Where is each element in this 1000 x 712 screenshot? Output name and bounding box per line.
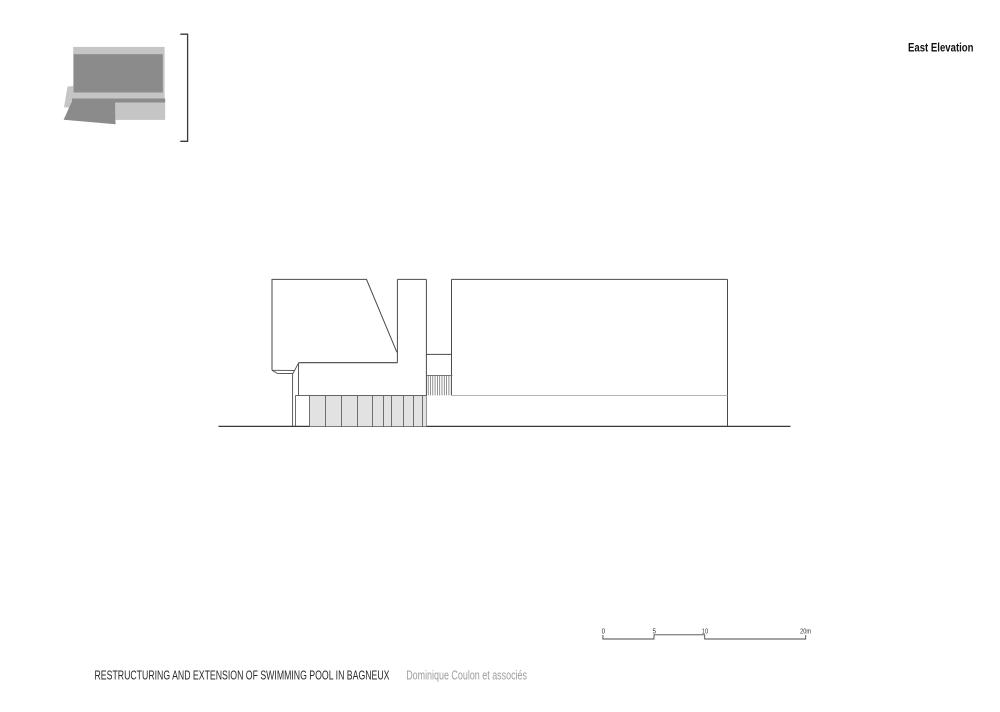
svg-text:20m: 20m — [800, 627, 811, 636]
svg-text:10: 10 — [702, 627, 709, 636]
svg-text:Dominique Coulon et associés: Dominique Coulon et associés — [406, 669, 527, 683]
svg-text:RESTRUCTURING AND EXTENSION OF: RESTRUCTURING AND EXTENSION OF SWIMMING … — [95, 669, 390, 683]
svg-text:East Elevation: East Elevation — [908, 41, 974, 55]
svg-text:0: 0 — [602, 627, 606, 636]
svg-text:5: 5 — [652, 627, 656, 636]
